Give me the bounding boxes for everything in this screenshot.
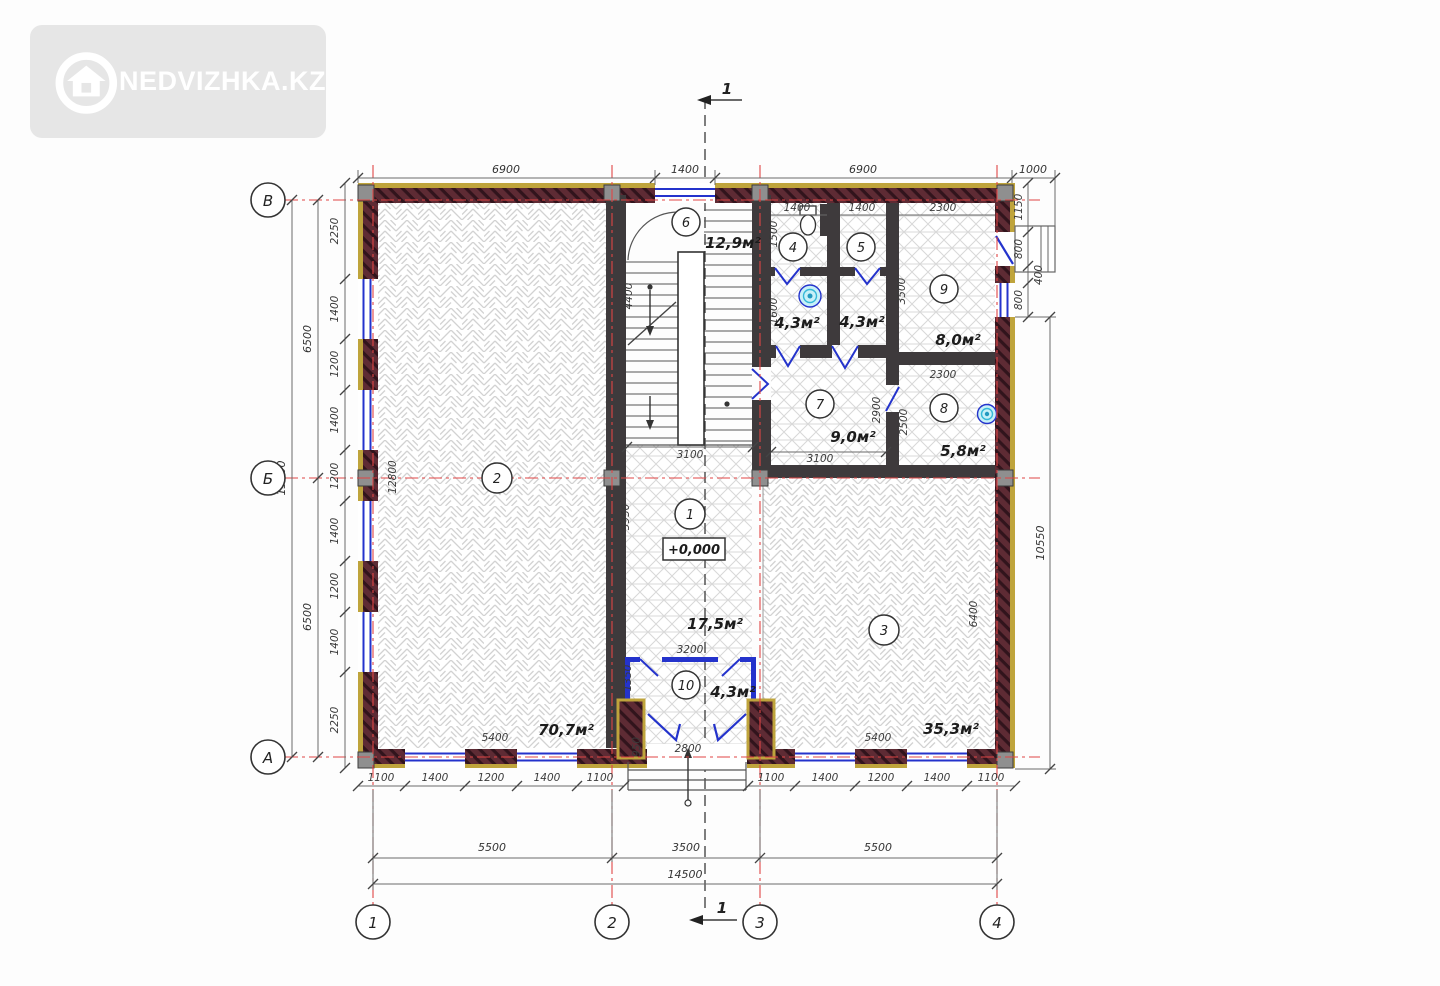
axis-bubble-1: 1	[368, 914, 378, 932]
room-number: 3	[880, 624, 888, 639]
room-number: 5	[857, 241, 865, 256]
axis-bubble-4: 4	[992, 914, 1002, 932]
room-area: 9,0м²	[830, 428, 876, 446]
dim: 800	[1013, 239, 1025, 259]
axis-bubble-3: 3	[755, 914, 765, 932]
dim: 5400	[865, 732, 892, 744]
dim: 1400	[422, 772, 449, 784]
room-area: 4,3м²	[709, 683, 756, 701]
dim: 950	[631, 737, 643, 757]
house-icon	[44, 37, 119, 127]
dim: 5950	[620, 503, 632, 530]
right-window	[995, 283, 1015, 317]
wc-partition	[800, 267, 855, 276]
screenshot-canvas: 1 1	[0, 0, 1440, 986]
dim: 3500	[672, 841, 700, 854]
dim: 800	[1013, 290, 1025, 310]
dim: 1350	[622, 664, 634, 691]
dim: 2900	[871, 396, 883, 423]
section-arrow-top	[697, 95, 711, 105]
dim: 6900	[492, 163, 520, 176]
elevation-value: +0,000	[668, 543, 720, 558]
dim: 2300	[930, 369, 957, 381]
dim: 12800	[387, 460, 399, 494]
watermark-logo: NEDVIZHKA.KZ	[30, 25, 326, 138]
drain-spiral-room8	[978, 405, 997, 424]
duct	[820, 204, 836, 236]
dim: 1500	[768, 220, 780, 247]
dim: 1400	[329, 295, 341, 322]
dim: 400	[1033, 265, 1045, 285]
axis-bubble-А: А	[262, 749, 273, 767]
room-3-floor	[763, 478, 995, 748]
axis-bubble-Б: Б	[263, 470, 273, 488]
dim: 6500	[301, 325, 314, 353]
wall-78-3	[752, 465, 995, 478]
dim: 1100	[758, 772, 785, 784]
dim: 1200	[329, 572, 341, 599]
floor-plan-drawing: 1 1	[0, 0, 1440, 986]
room-number: 1	[686, 508, 694, 523]
wall-9-8	[899, 352, 995, 365]
dim: 5500	[478, 841, 506, 854]
elevation-mark: +0,000	[663, 538, 725, 560]
section-label-top: 1	[722, 80, 732, 98]
dim: 1200	[478, 772, 505, 784]
room-number: 9	[940, 283, 948, 298]
room-number: 2	[493, 472, 501, 487]
dim: 3100	[807, 453, 834, 465]
drain-spiral-room4	[799, 285, 821, 307]
room-number: 6	[682, 216, 690, 231]
dim: 2500	[898, 408, 910, 435]
dim: 3200	[677, 644, 704, 656]
dim: 1000	[1019, 163, 1047, 176]
dim: 10550	[1034, 526, 1047, 561]
stair-direction-arrow	[646, 326, 654, 336]
dim: 6900	[849, 163, 877, 176]
dim: 1200	[868, 772, 895, 784]
dim: 1400	[812, 772, 839, 784]
dim: 1400	[329, 517, 341, 544]
room-area: 12,9м²	[705, 234, 761, 252]
dim: 1400	[534, 772, 561, 784]
dim: 1400	[784, 202, 811, 214]
dim: 1200	[329, 350, 341, 377]
dim: 1100	[587, 772, 614, 784]
dim: 2300	[930, 202, 957, 214]
stair-arc	[628, 212, 678, 260]
dim: 1400	[671, 163, 699, 176]
dim: 1400	[849, 202, 876, 214]
dim: 1400	[329, 628, 341, 655]
right-entry-door	[995, 232, 1015, 266]
dim: 2250	[329, 706, 341, 733]
room-number: 4	[789, 241, 797, 256]
brand-text: NEDVIZHKA.KZ	[119, 66, 326, 97]
room-area: 70,7м²	[538, 721, 594, 739]
axis-bubble-2: 2	[607, 914, 617, 932]
axis-bubble-В: В	[263, 192, 273, 210]
room-number: 7	[816, 398, 825, 413]
room-number: 10	[678, 679, 695, 694]
dim: 1400	[924, 772, 951, 784]
room-area: 5,8м²	[940, 442, 986, 460]
room-area: 4,3м²	[838, 313, 885, 331]
room-area: 35,3м²	[923, 720, 979, 738]
stair-mid-wall	[678, 252, 704, 445]
dim: 1150	[1013, 193, 1025, 220]
dim: 4400	[623, 282, 635, 309]
porch-pier-right	[748, 700, 774, 758]
section-label-bottom: 1	[717, 899, 727, 917]
dim: 2800	[675, 743, 702, 755]
wall-45-7	[800, 345, 832, 358]
dim: 1400	[329, 406, 341, 433]
dim: 3100	[677, 449, 704, 461]
section-arrow-bottom	[689, 915, 703, 925]
room-area: 4,3м²	[773, 314, 820, 332]
dim: 5500	[864, 841, 892, 854]
dim: 6500	[301, 603, 314, 631]
dim: 1100	[978, 772, 1005, 784]
dim: 2250	[329, 217, 341, 244]
dim: 1200	[329, 462, 341, 489]
dim: 5400	[482, 732, 509, 744]
room-area: 17,5м²	[687, 615, 743, 633]
dim: 6400	[968, 600, 980, 627]
dim: 3500	[896, 277, 908, 304]
dim: 1100	[368, 772, 395, 784]
dim: 14500	[668, 868, 703, 881]
room-number: 8	[940, 402, 948, 417]
room-area: 8,0м²	[935, 331, 981, 349]
